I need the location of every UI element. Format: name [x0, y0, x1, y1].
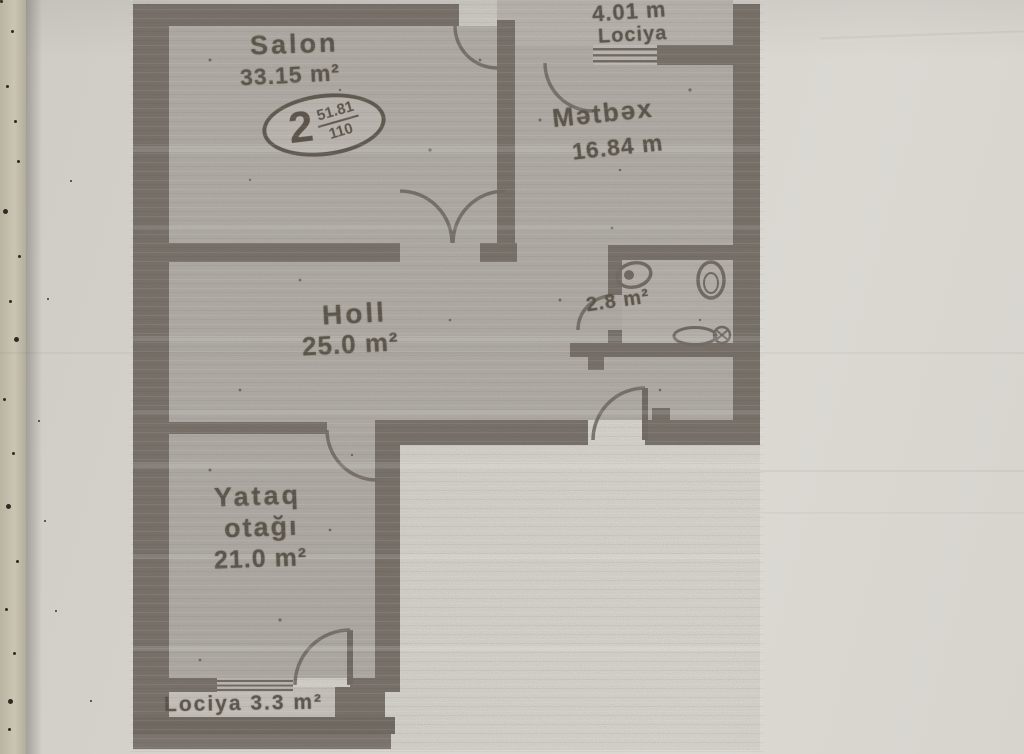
salon-label: Salon	[250, 29, 339, 59]
floor-plan-drawing	[0, 0, 1024, 754]
bedroom-label-line1: Yataq	[214, 481, 302, 511]
hall-label: Holl	[321, 298, 387, 329]
bedroom-area: 21.0 m²	[214, 545, 308, 573]
floor-plan: Salon 33.15 m² 2 51.81 110 Mətbəx 16.84 …	[0, 0, 1024, 754]
unit-number: 2	[286, 107, 315, 149]
photocopy-grain	[133, 0, 760, 750]
hall-area: 25.0 m²	[301, 328, 399, 359]
salon-area: 33.15 m²	[239, 61, 340, 89]
unit-fraction: 51.81 110	[313, 97, 363, 145]
loggia-bottom-label: Lociya 3.3 m²	[164, 692, 323, 716]
loggia-top-label: Lociya	[598, 23, 668, 47]
bedroom-label-line2: otağı	[224, 513, 299, 543]
